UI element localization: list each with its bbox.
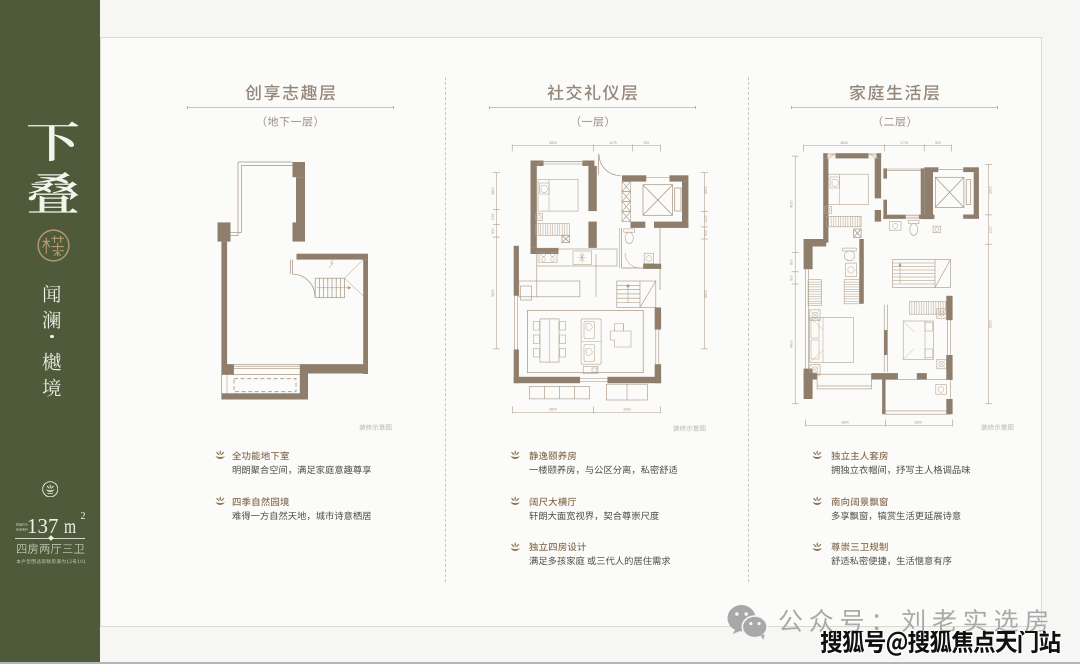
svg-text:4900: 4900 [790, 340, 794, 348]
svg-text:2900: 2900 [704, 186, 708, 194]
svg-text:3600: 3600 [840, 141, 848, 145]
svg-text:6500: 6500 [988, 320, 992, 328]
svg-text:1100: 1100 [988, 226, 992, 233]
svg-text:5500: 5500 [491, 289, 495, 297]
svg-text:800: 800 [790, 259, 794, 265]
svg-text:920: 920 [935, 141, 941, 145]
svg-text:1175: 1175 [609, 141, 616, 145]
svg-text:900: 900 [704, 230, 708, 236]
svg-text:900: 900 [491, 228, 495, 234]
svg-text:3600: 3600 [549, 408, 557, 412]
svg-text:1775: 1775 [900, 141, 908, 145]
svg-text:3300: 3300 [623, 408, 631, 412]
svg-text:5500: 5500 [704, 290, 708, 298]
svg-text:500: 500 [790, 275, 794, 281]
svg-text:1100: 1100 [704, 215, 708, 222]
svg-text:1150: 1150 [491, 213, 495, 220]
svg-text:4000: 4000 [790, 200, 794, 208]
svg-text:3600: 3600 [549, 141, 557, 145]
svg-text:3600: 3600 [841, 421, 849, 425]
svg-text:920: 920 [644, 141, 650, 145]
svg-text:3300: 3300 [914, 421, 922, 425]
svg-text:2800: 2800 [491, 187, 495, 195]
svg-text:2900: 2900 [988, 186, 992, 194]
